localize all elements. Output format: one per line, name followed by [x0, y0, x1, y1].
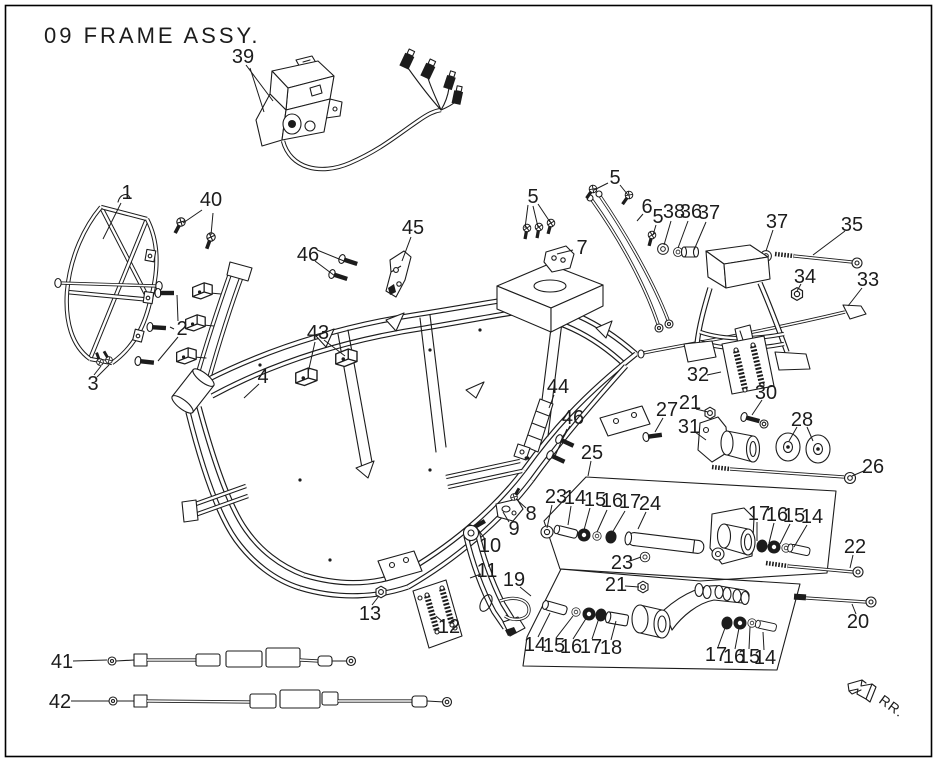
callout-16: 16	[560, 636, 582, 658]
callout-21: 21	[679, 392, 701, 414]
callout-18: 18	[600, 637, 622, 659]
callout-20: 20	[847, 611, 869, 633]
callout-41: 41	[51, 651, 73, 673]
callout-34: 34	[794, 266, 816, 288]
callout-24: 24	[639, 493, 661, 515]
callout-14: 14	[564, 487, 586, 509]
callout-5: 5	[609, 167, 620, 189]
callout-7: 7	[576, 237, 587, 259]
callout-27: 27	[656, 399, 678, 421]
callout-13: 13	[359, 603, 381, 625]
callout-9: 9	[508, 518, 519, 540]
callout-30: 30	[755, 382, 777, 404]
callout-22: 22	[844, 536, 866, 558]
callout-10: 10	[479, 535, 501, 557]
callout-8: 8	[525, 503, 536, 525]
callout-17: 17	[619, 491, 641, 513]
diagram-page: 09 FRAME ASSY.	[0, 0, 937, 762]
frame-assy-diagram: 09 FRAME ASSY.	[0, 0, 937, 762]
callout-25: 25	[581, 442, 603, 464]
callout-37: 37	[766, 211, 788, 233]
callout-46: 46	[562, 407, 584, 429]
callout-12: 12	[438, 616, 460, 638]
callout-1: 1	[121, 182, 132, 204]
callout-39: 39	[232, 46, 254, 68]
callout-28: 28	[791, 409, 813, 431]
callout-42: 42	[49, 691, 71, 713]
callout-23: 23	[611, 552, 633, 574]
callout-43: 43	[307, 322, 329, 344]
callout-19: 19	[503, 569, 525, 591]
callout-17: 17	[580, 636, 602, 658]
page-title: 09 FRAME ASSY.	[44, 23, 260, 48]
callout-3: 3	[87, 373, 98, 395]
callout-4: 4	[257, 366, 268, 388]
callout-2: 2	[176, 318, 187, 340]
callout-21: 21	[605, 574, 627, 596]
callout-46: 46	[297, 244, 319, 266]
callout-33: 33	[857, 269, 879, 291]
callout-37: 37	[698, 202, 720, 224]
callout-14: 14	[801, 506, 823, 528]
callout-32: 32	[687, 364, 709, 386]
callout-14: 14	[754, 647, 776, 669]
callout-31: 31	[678, 416, 700, 438]
callout-5: 5	[527, 186, 538, 208]
callout-45: 45	[402, 217, 424, 239]
callout-35: 35	[841, 214, 863, 236]
callout-26: 26	[862, 456, 884, 478]
callout-40: 40	[200, 189, 222, 211]
callout-44: 44	[547, 376, 569, 398]
drawing-border	[6, 6, 932, 757]
callout-11: 11	[477, 560, 498, 582]
callout-6: 6	[641, 196, 652, 218]
